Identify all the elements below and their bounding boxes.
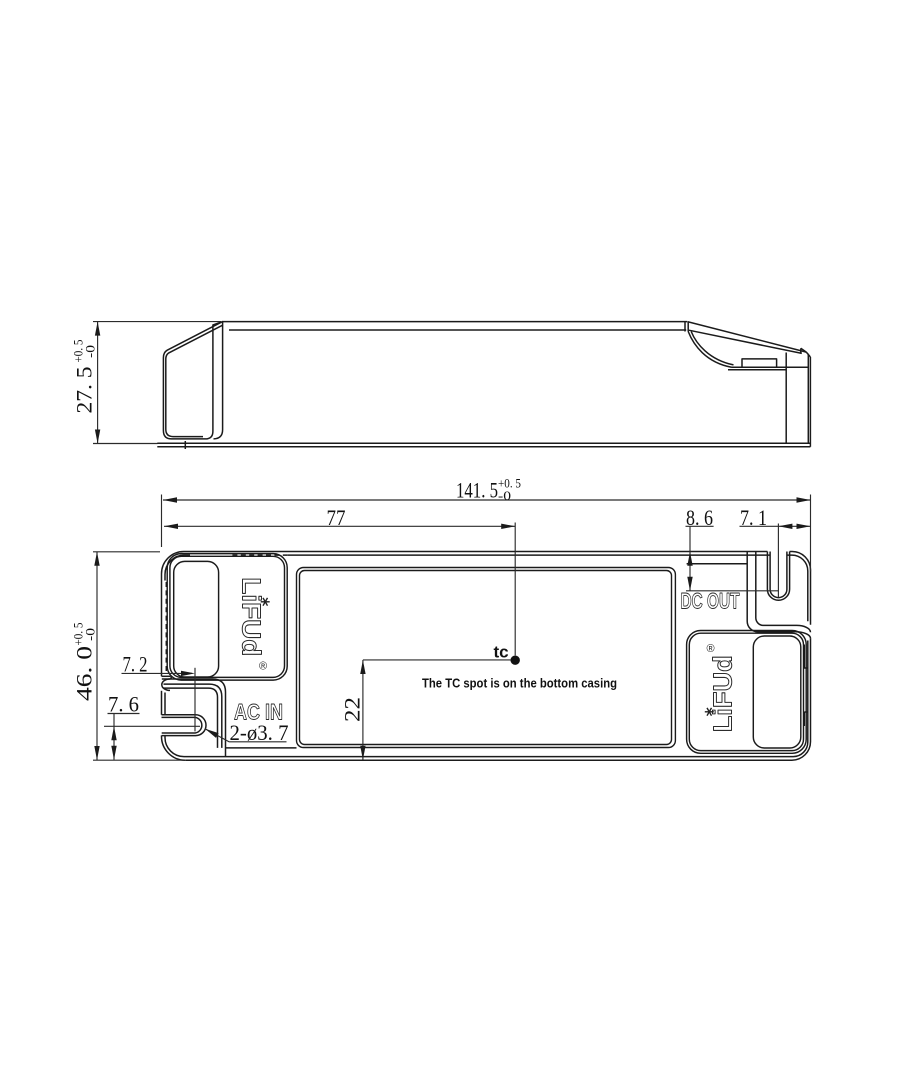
- svg-text:77: 77: [327, 505, 346, 530]
- svg-text:8. 6: 8. 6: [686, 505, 713, 530]
- svg-text:-0: -0: [498, 489, 511, 503]
- svg-text:141. 5: 141. 5: [456, 477, 498, 502]
- svg-text:46. 0: 46. 0: [72, 646, 97, 701]
- svg-text:tc: tc: [494, 643, 509, 662]
- svg-text:®: ®: [259, 660, 267, 672]
- svg-text:7. 1: 7. 1: [740, 505, 767, 530]
- svg-text:LiFUd: LiFUd: [236, 577, 266, 656]
- svg-text:-0: -0: [84, 345, 98, 358]
- svg-text:27. 5: 27. 5: [72, 367, 97, 414]
- svg-text:7. 2: 7. 2: [123, 652, 148, 677]
- svg-text:7. 6: 7. 6: [108, 691, 139, 716]
- svg-text:®: ®: [706, 643, 714, 655]
- svg-text:2-ø3. 7: 2-ø3. 7: [230, 720, 289, 745]
- svg-text:22: 22: [340, 697, 365, 722]
- svg-text:-0: -0: [84, 628, 98, 641]
- svg-text:The TC spot is on the bottom c: The TC spot is on the bottom casing: [422, 677, 617, 691]
- svg-text:DC OUT: DC OUT: [681, 588, 740, 613]
- svg-text:LiFUd: LiFUd: [708, 655, 738, 732]
